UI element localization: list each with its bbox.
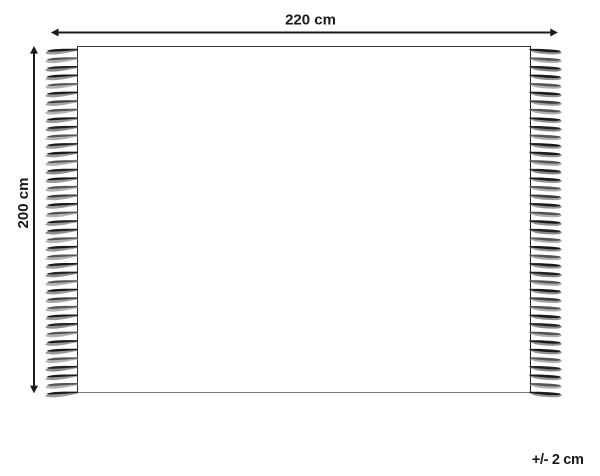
svg-text:200 cm: 200 cm <box>15 178 32 229</box>
svg-text:220 cm: 220 cm <box>285 12 336 29</box>
svg-text:+/- 2 cm: +/- 2 cm <box>532 452 584 468</box>
